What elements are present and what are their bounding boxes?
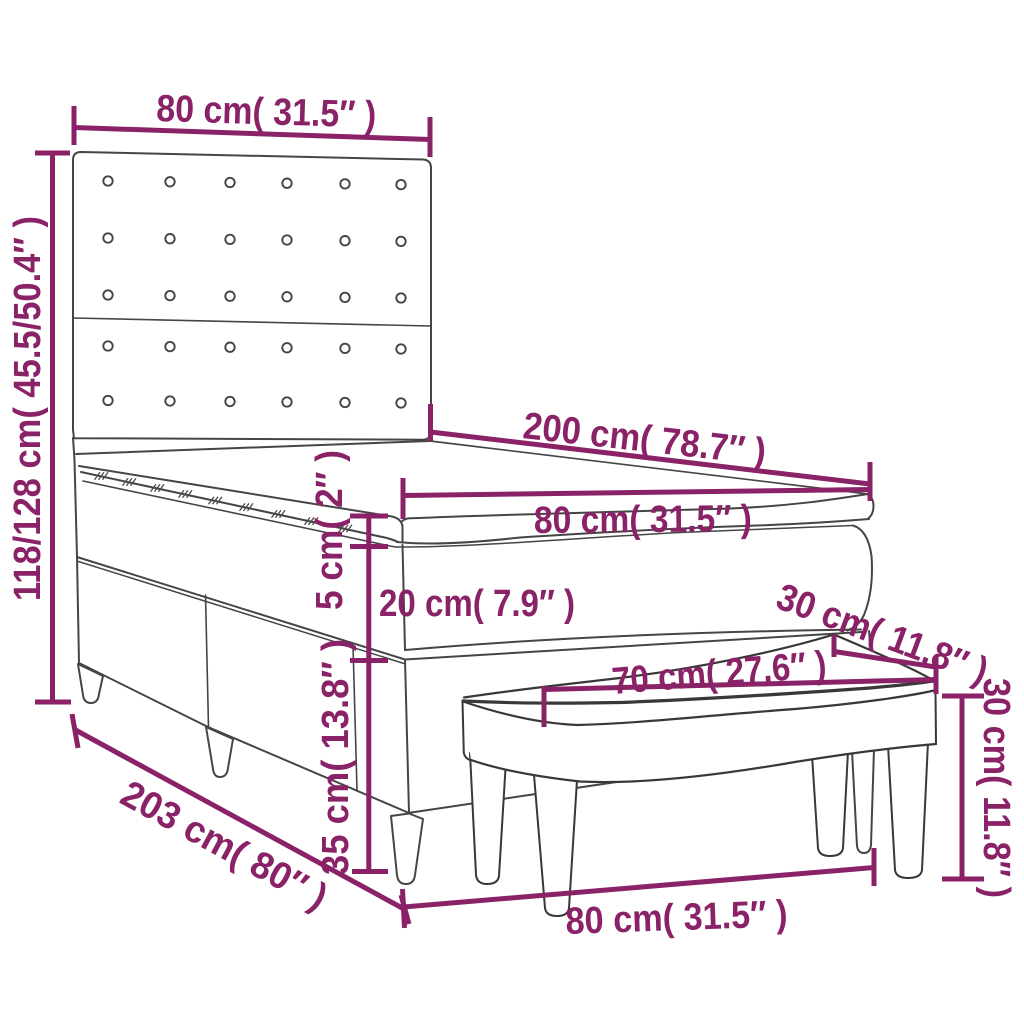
svg-text:80 cm( 31.5″ ): 80 cm( 31.5″ )	[156, 88, 377, 137]
svg-text:80 cm( 31.5″ ): 80 cm( 31.5″ )	[534, 498, 752, 542]
svg-text:30 cm( 11.8″ ): 30 cm( 11.8″ )	[975, 678, 1017, 898]
svg-text:5 cm( 2″ ): 5 cm( 2″ )	[309, 450, 351, 610]
svg-text:20 cm( 7.9″ ): 20 cm( 7.9″ )	[379, 583, 575, 625]
svg-text:35 cm( 13.8″ ): 35 cm( 13.8″ )	[315, 639, 357, 875]
svg-text:118/128 cm( 45.5/50.4″ ): 118/128 cm( 45.5/50.4″ )	[7, 216, 49, 601]
svg-text:80 cm( 31.5″ ): 80 cm( 31.5″ )	[565, 893, 788, 943]
